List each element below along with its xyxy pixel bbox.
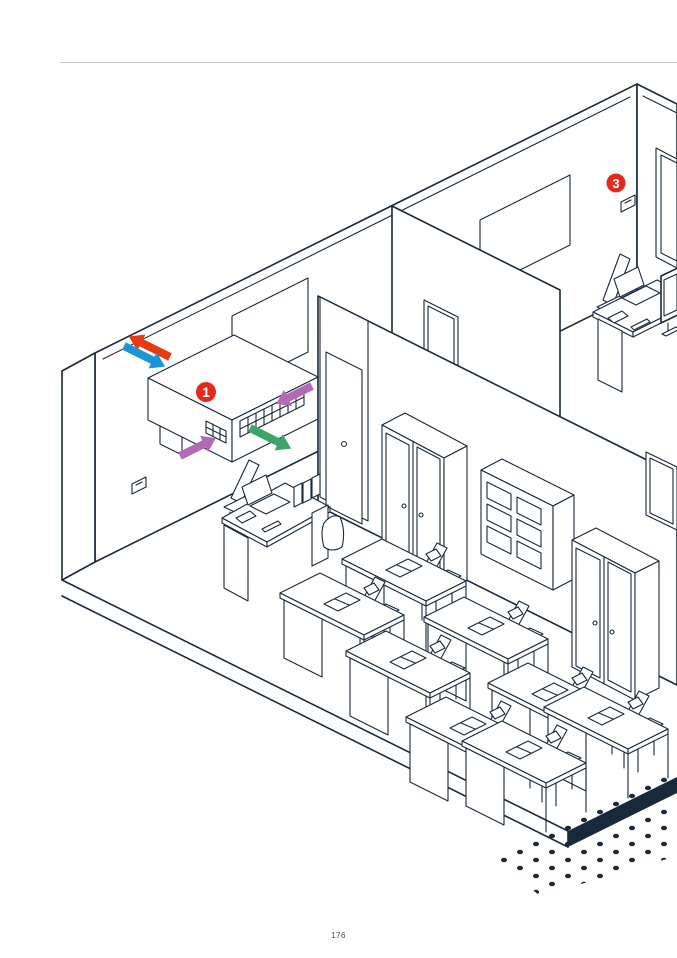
classroom-door: [320, 297, 368, 524]
svg-text:1: 1: [202, 384, 210, 400]
document-page: 3: [0, 0, 677, 958]
monitor: [661, 267, 677, 336]
school-bag: [322, 516, 344, 550]
office-window: [656, 148, 677, 268]
marker-3: 3: [607, 174, 626, 193]
page-number: 176: [0, 931, 677, 940]
isometric-illustration: 3: [0, 0, 677, 958]
marker-1: 1: [196, 382, 216, 402]
left-wall-stub: [62, 353, 95, 580]
svg-text:3: 3: [612, 176, 619, 191]
